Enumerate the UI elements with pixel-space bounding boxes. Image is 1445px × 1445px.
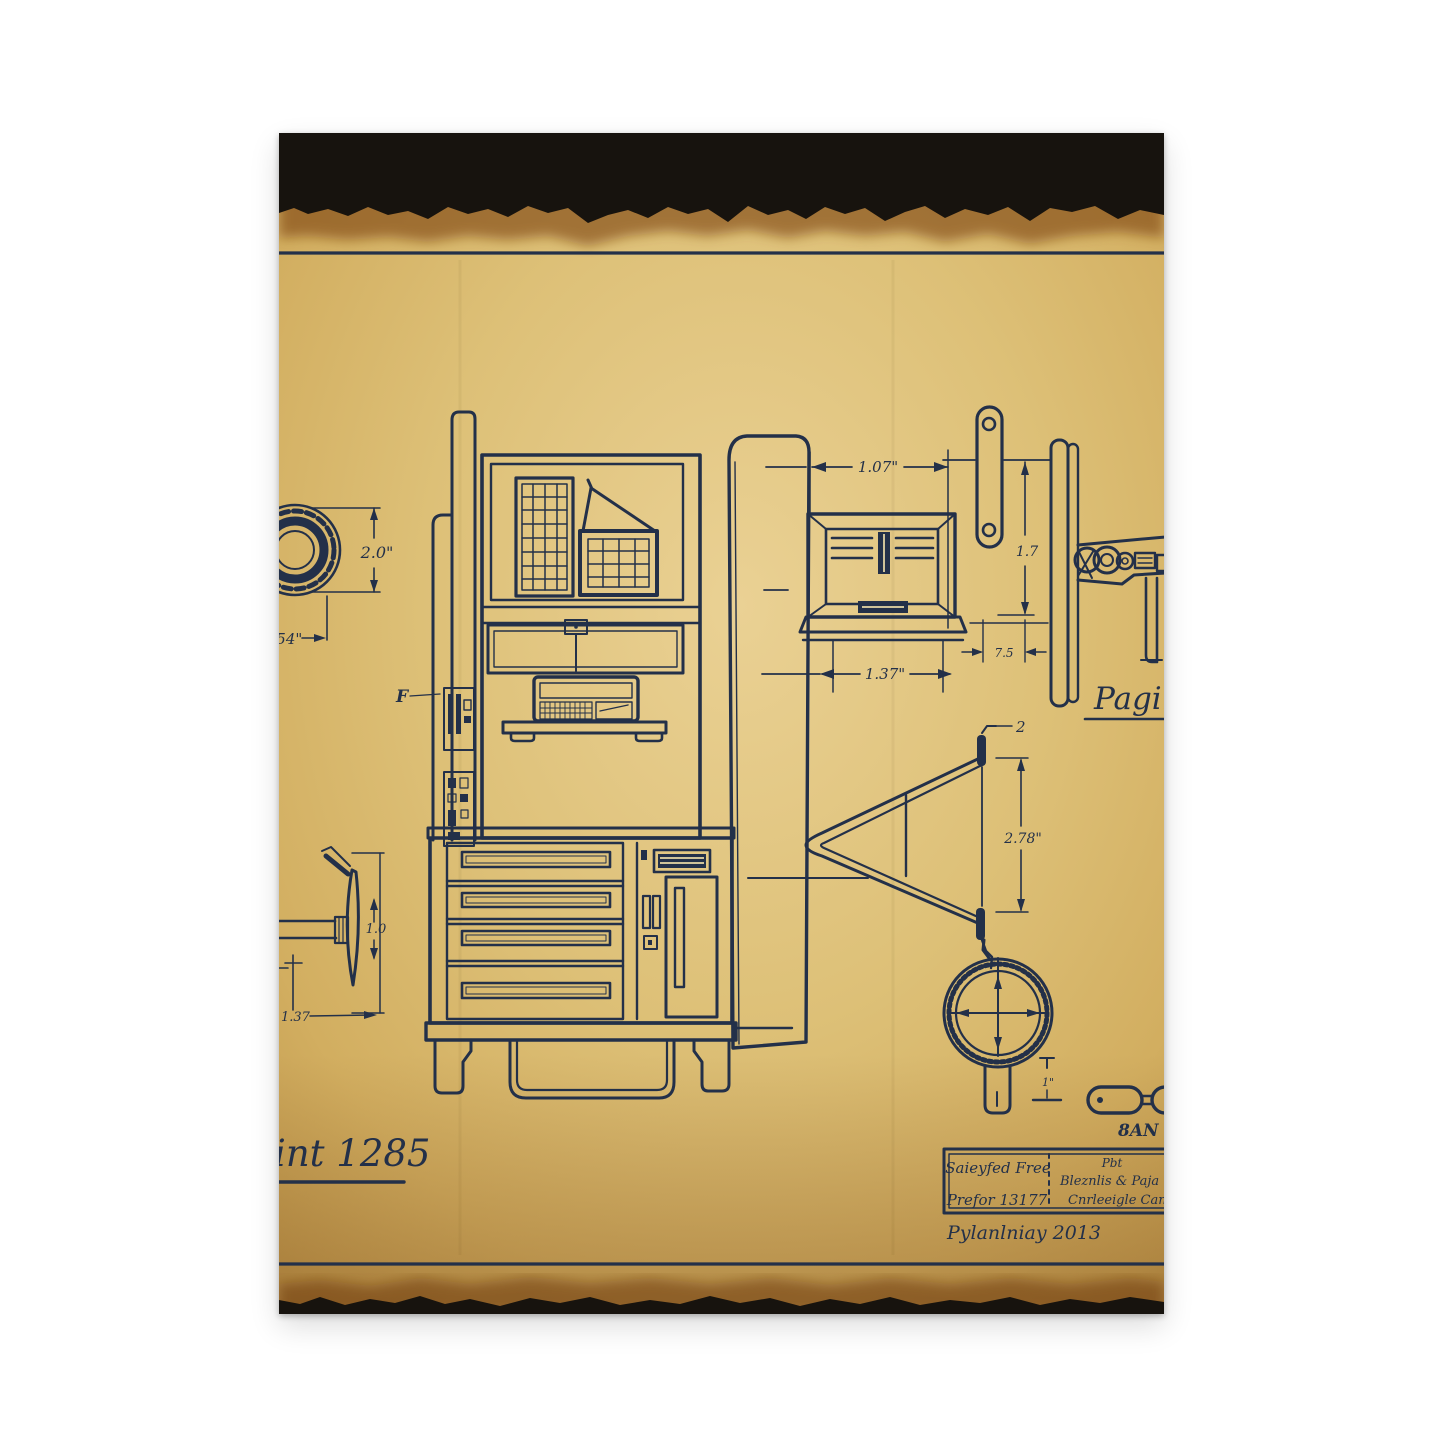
- dim-wheel-offset: 1.37: [281, 1010, 311, 1025]
- page-script: Pagin: [1085, 681, 1164, 719]
- label-f: F: [395, 687, 410, 707]
- print-title-text: int 1285: [279, 1132, 430, 1175]
- dim-strap-height: 1.7: [1016, 544, 1038, 560]
- title-block-right-line1: Pbt: [1101, 1156, 1123, 1170]
- title-block-left-bottom: Prefor 13177: [946, 1191, 1048, 1209]
- page-script-text: Pagin: [1093, 681, 1164, 717]
- burnt-top-edge: [279, 133, 1164, 246]
- dim-vent-top: 1.07": [858, 458, 898, 476]
- label-two: 2: [1015, 718, 1026, 736]
- dim-bearing-height: 2.0": [360, 543, 394, 562]
- dim-wheel-height: 1.0: [366, 922, 387, 937]
- product-photo-background: 2.0" 1.54": [0, 0, 1445, 1445]
- blueprint-canvas-print: 2.0" 1.54": [279, 133, 1164, 1314]
- title-block-right-line2: Bleznlis & Paja: [1059, 1174, 1159, 1189]
- title-block-left-top: Saieyfed Free: [945, 1159, 1051, 1177]
- pan-label: 8AN: [1117, 1121, 1160, 1141]
- dim-strap-width: 7.5: [994, 646, 1013, 660]
- print-title: int 1285: [279, 1132, 430, 1182]
- dim-vbracket: 2.78": [1003, 831, 1042, 847]
- dim-gauge-stem: 1": [1042, 1076, 1054, 1089]
- title-block-right-line3: Cnrleeigle Can: [1068, 1193, 1164, 1208]
- title-block-signature: Pylanlniay 2013: [946, 1222, 1101, 1244]
- dim-bearing-offset: 1.54": [279, 630, 302, 648]
- dim-vent-bottom: 1.37": [865, 665, 905, 683]
